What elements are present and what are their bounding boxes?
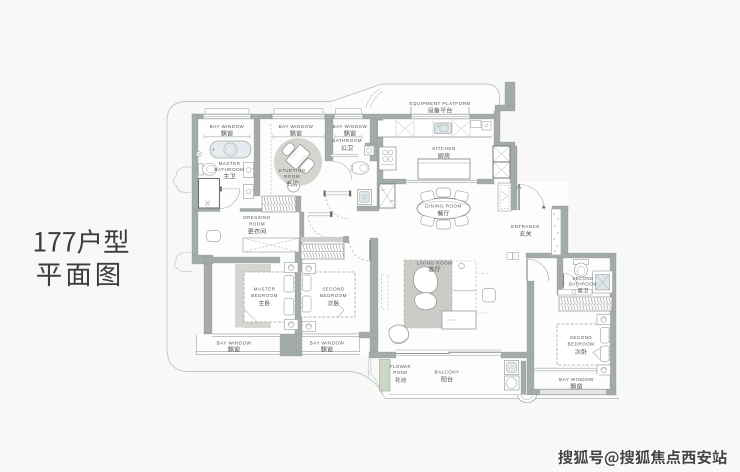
svg-text:SECOND: SECOND: [572, 276, 593, 281]
svg-text:BEDROOM: BEDROOM: [320, 293, 347, 298]
svg-text:BEDROOM: BEDROOM: [251, 293, 278, 298]
svg-text:DINING ROOM: DINING ROOM: [425, 204, 462, 209]
svg-text:BALCONY: BALCONY: [434, 370, 459, 375]
svg-text:BAY WINDOW: BAY WINDOW: [217, 341, 252, 346]
svg-text:ROOM: ROOM: [249, 222, 265, 227]
svg-text:BAY WINDOW: BAY WINDOW: [310, 341, 345, 346]
svg-text:ROOM: ROOM: [284, 174, 300, 179]
svg-text:BAY WINDOW: BAY WINDOW: [210, 124, 245, 129]
svg-text:BAY WINDOW: BAY WINDOW: [333, 124, 368, 129]
svg-text:MASTER: MASTER: [219, 161, 241, 166]
svg-text:MASTER: MASTER: [254, 287, 276, 292]
svg-text:POND: POND: [393, 370, 407, 375]
svg-text:SECOND: SECOND: [570, 335, 593, 340]
svg-text:ENTRANCE: ENTRANCE: [511, 224, 540, 229]
svg-text:BATHROOM: BATHROOM: [569, 282, 597, 287]
svg-text:BATHROOM: BATHROOM: [332, 138, 362, 143]
svg-text:SECOND: SECOND: [322, 287, 345, 292]
svg-text:BATHROOM: BATHROOM: [215, 167, 245, 172]
svg-text:FLOWER: FLOWER: [390, 364, 411, 369]
svg-text:LIVING ROOM: LIVING ROOM: [417, 261, 453, 266]
svg-text:KITCHEN: KITCHEN: [432, 146, 455, 151]
svg-text:BEDROOM: BEDROOM: [568, 342, 595, 347]
svg-text:EQUIPMENT PLATFORM: EQUIPMENT PLATFORM: [409, 101, 470, 106]
svg-text:STUDYING: STUDYING: [278, 168, 305, 173]
svg-text:DRESSING: DRESSING: [243, 215, 271, 220]
svg-text:BAY WINDOW: BAY WINDOW: [279, 124, 314, 129]
svg-text:BAY WINDOW: BAY WINDOW: [559, 377, 594, 382]
